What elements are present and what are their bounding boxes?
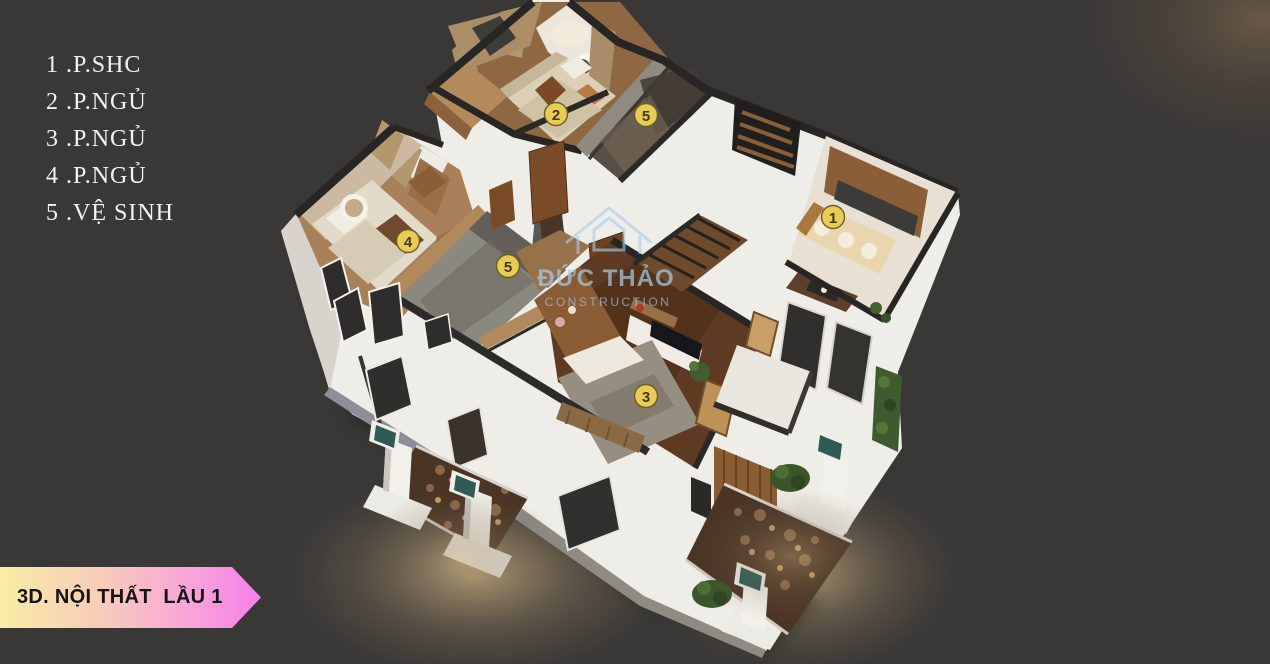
svg-text:3: 3 — [642, 389, 650, 406]
svg-text:1: 1 — [829, 210, 837, 227]
svg-text:5: 5 — [504, 259, 512, 276]
svg-text:5: 5 — [642, 108, 650, 125]
svg-text:ĐỨC THẢO: ĐỨC THẢO — [537, 263, 674, 292]
svg-text:CONSTRUCTION: CONSTRUCTION — [545, 295, 672, 309]
svg-text:4: 4 — [404, 234, 413, 251]
svg-text:2: 2 — [552, 107, 560, 124]
